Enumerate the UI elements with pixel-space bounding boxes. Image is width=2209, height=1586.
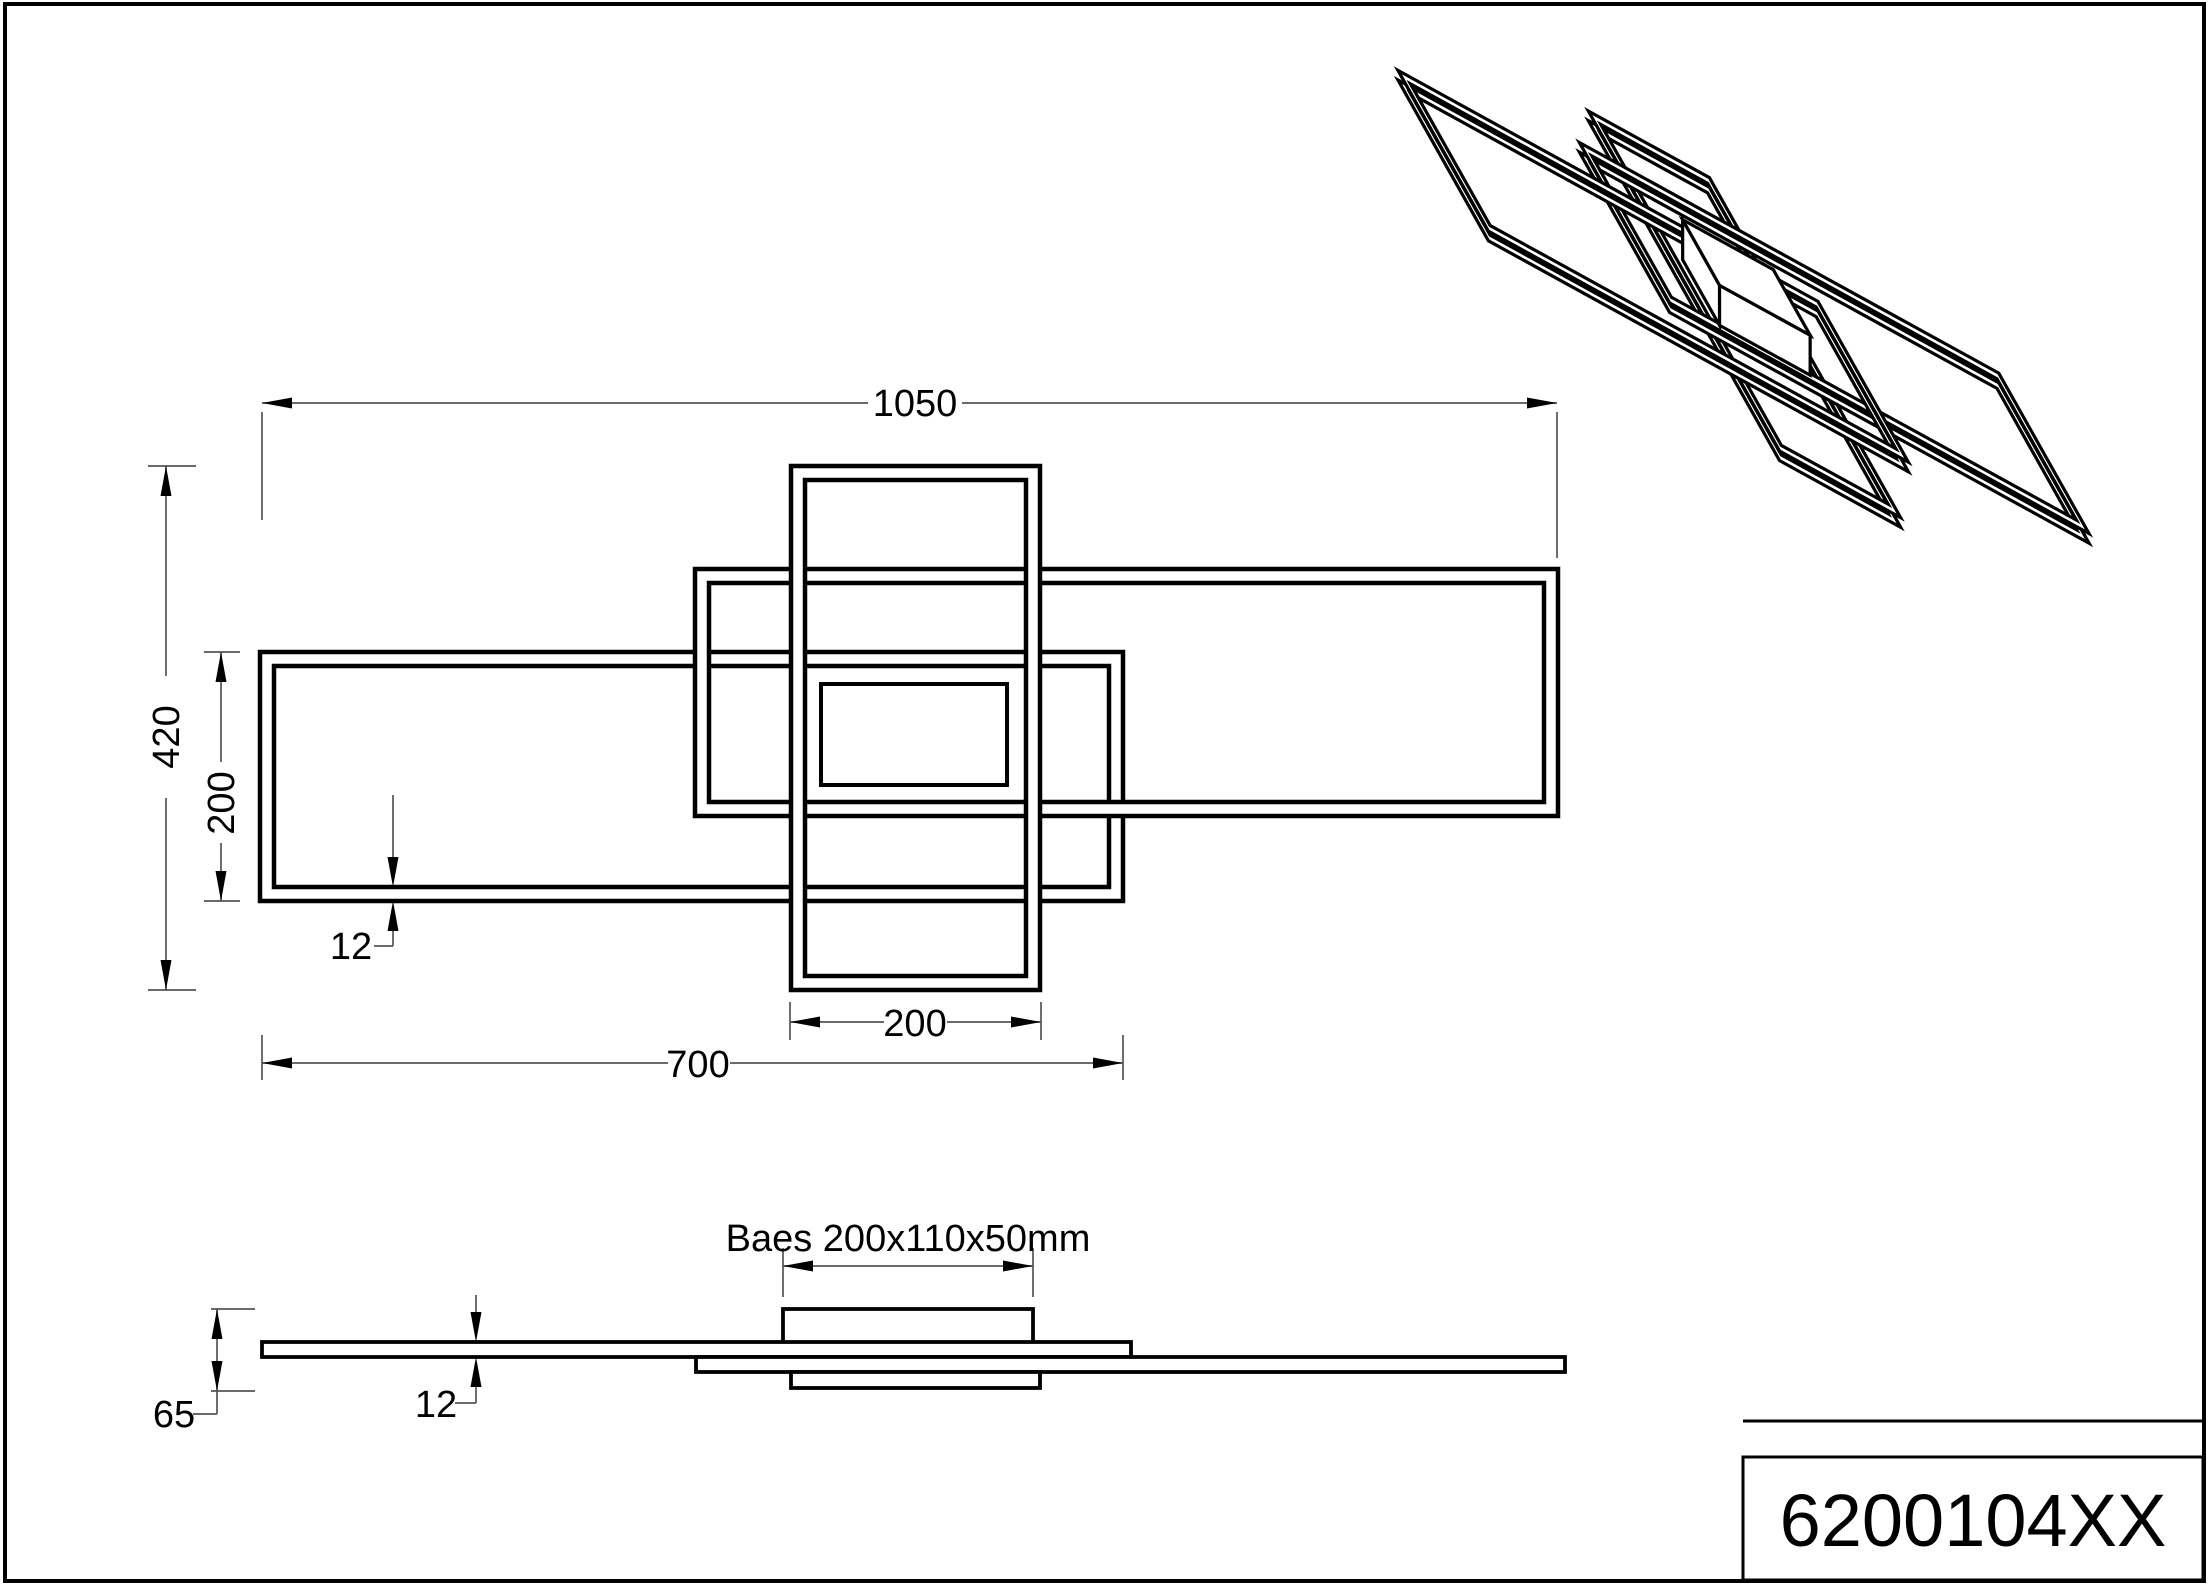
base-size-label: Baes 200x110x50mm xyxy=(726,1218,1091,1260)
dim-overall-width-arrowhead xyxy=(1527,398,1557,409)
dim-center-frame-width-arrowhead xyxy=(790,1017,820,1028)
technical-drawing-sheet: 1050 420 200 200 700 12 Baes 200x110x50m… xyxy=(0,0,2209,1586)
title-block: 6200104XX xyxy=(1743,1421,2203,1580)
dim-frame-depth-arrowhead xyxy=(216,652,227,682)
dim-label-overall-height: 65 xyxy=(153,1394,195,1436)
dim-base-width-arrowhead xyxy=(1003,1261,1033,1272)
dimension-lines xyxy=(148,398,1557,1415)
dim-overall-depth-arrowhead xyxy=(161,960,172,990)
mounting-base-plan xyxy=(821,684,1007,785)
dim-overall-width-arrowhead xyxy=(262,398,292,409)
dim-frame-width-arrowhead xyxy=(262,1058,292,1069)
dim-profile-width-arrowhead xyxy=(388,857,399,887)
dim-label-frame-width: 700 xyxy=(666,1044,729,1086)
left-frame-side-profile xyxy=(262,1342,1131,1357)
dim-label-profile-width: 12 xyxy=(330,926,372,968)
dim-label-frame-depth: 200 xyxy=(201,771,243,834)
dim-label-overall-width: 1050 xyxy=(873,383,958,425)
dim-label-overall-depth: 420 xyxy=(146,705,188,768)
dim-label-profile-height: 12 xyxy=(415,1384,457,1426)
dim-frame-depth-arrowhead xyxy=(216,871,227,901)
dim-base-width-arrowhead xyxy=(783,1261,813,1272)
side-view xyxy=(262,1309,1565,1388)
dim-profile-height-arrowhead xyxy=(471,1312,482,1342)
center-frame-side-profile xyxy=(791,1372,1040,1388)
dim-overall-depth-arrowhead xyxy=(161,466,172,496)
base-top-profile xyxy=(783,1309,1033,1343)
part-number: 6200104XX xyxy=(1780,1479,2167,1562)
dimension-labels: 1050 420 200 200 700 12 Baes 200x110x50m… xyxy=(146,383,1090,1436)
dim-frame-width-arrowhead xyxy=(1093,1058,1123,1069)
dim-profile-width-arrowhead xyxy=(388,901,399,931)
dim-label-center-frame-width: 200 xyxy=(883,1003,946,1045)
right-frame-side-profile xyxy=(696,1357,1565,1372)
dim-center-frame-width-arrowhead xyxy=(1011,1017,1041,1028)
drawing-canvas: 1050 420 200 200 700 12 Baes 200x110x50m… xyxy=(0,0,2209,1586)
dim-overall-height-arrowhead xyxy=(212,1309,223,1339)
dim-profile-height-arrowhead xyxy=(471,1357,482,1387)
plan-view xyxy=(260,466,1558,990)
isometric-view xyxy=(1398,70,2089,543)
dim-overall-height-arrowhead xyxy=(212,1361,223,1391)
